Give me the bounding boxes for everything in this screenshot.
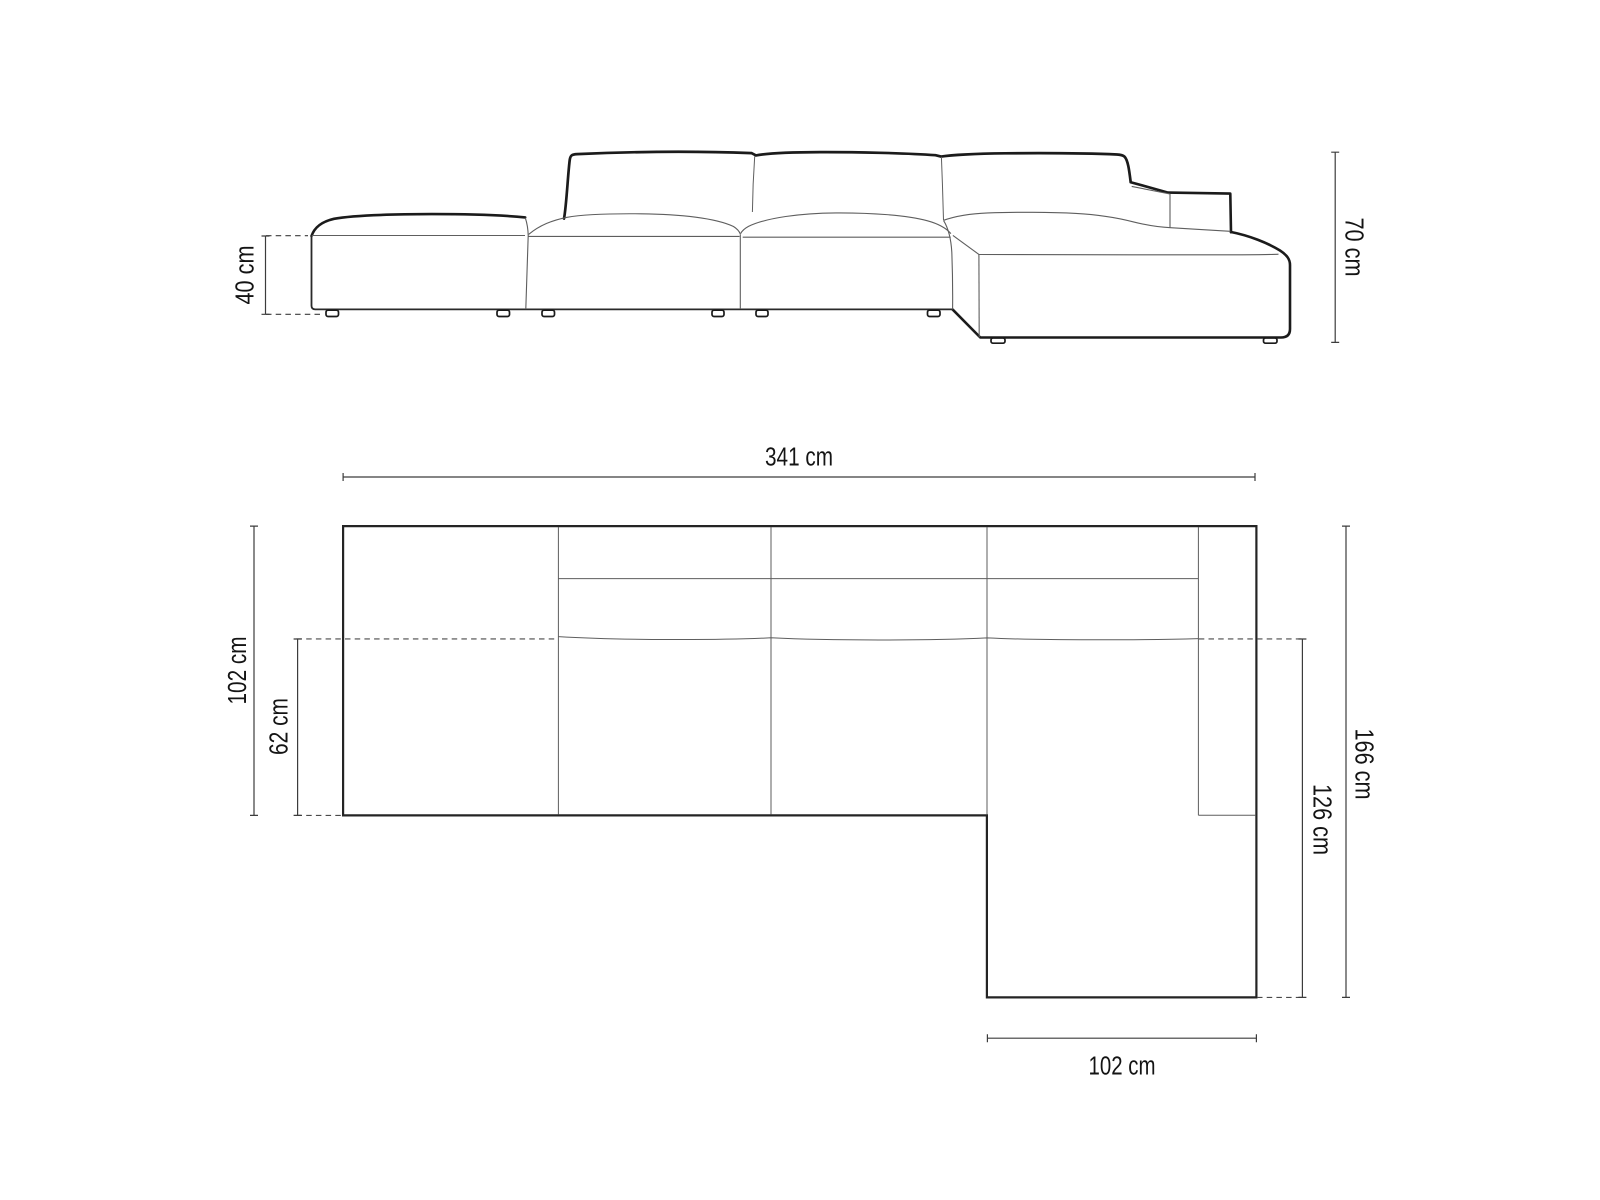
svg-text:102 cm: 102 cm (224, 637, 252, 705)
svg-text:166 cm: 166 cm (1350, 729, 1378, 800)
svg-text:341 cm: 341 cm (765, 444, 833, 472)
svg-text:40 cm: 40 cm (232, 246, 260, 305)
svg-text:126 cm: 126 cm (1308, 784, 1336, 855)
svg-text:70 cm: 70 cm (1340, 218, 1368, 277)
svg-text:62 cm: 62 cm (266, 698, 294, 755)
svg-text:102 cm: 102 cm (1089, 1053, 1156, 1081)
